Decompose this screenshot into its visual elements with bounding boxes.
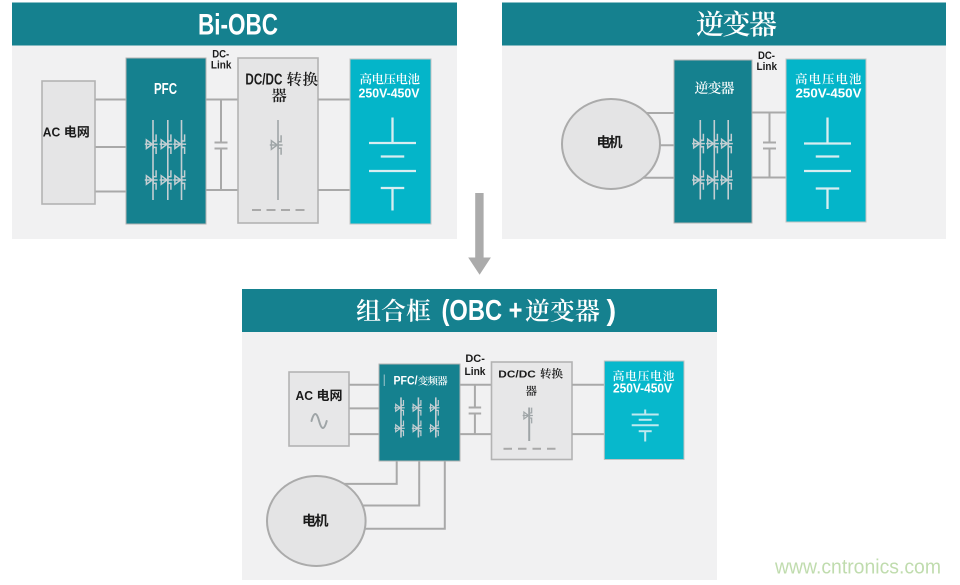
svg-text:(OBC +: (OBC +: [442, 295, 523, 327]
svg-text:AC: AC: [43, 125, 61, 140]
svg-text:250V-450V: 250V-450V: [796, 86, 862, 101]
svg-text:250V-450V: 250V-450V: [359, 86, 420, 101]
svg-text:Link: Link: [465, 366, 487, 378]
svg-text:PFC: PFC: [154, 81, 177, 98]
svg-text:Link: Link: [757, 61, 778, 73]
svg-text:PFC/: PFC/: [394, 376, 419, 388]
svg-text:DC/DC: DC/DC: [498, 369, 536, 381]
svg-text:DC/DC: DC/DC: [245, 71, 282, 88]
svg-text:): ): [607, 295, 617, 327]
svg-text:Link: Link: [211, 60, 232, 72]
svg-text:DC-: DC-: [465, 353, 485, 365]
svg-text:AC: AC: [296, 388, 314, 403]
svg-text:Bi-OBC: Bi-OBC: [198, 9, 278, 42]
svg-text:www.cntronics.com: www.cntronics.com: [774, 556, 941, 579]
svg-text:250V-450V: 250V-450V: [613, 382, 673, 396]
